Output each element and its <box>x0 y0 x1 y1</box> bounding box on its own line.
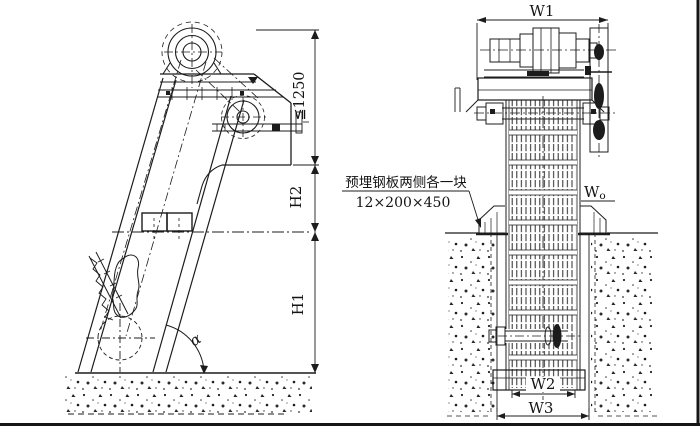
note-line1: 预埋钢板两侧各一块 <box>345 175 467 190</box>
bar-screen-drawing: ≦1250 H2 H1 α W1 Wo W2 W3 预埋钢板两侧各一块 12×2… <box>0 0 700 426</box>
dim-label-w2: W2 <box>531 375 556 393</box>
deck-anchor-boxes <box>142 213 192 242</box>
dim-label-h1: H1 <box>289 293 307 316</box>
side-view <box>64 22 319 414</box>
head-drive-assembly <box>158 24 309 204</box>
bar-grille <box>506 96 580 400</box>
w0-main: W <box>584 183 600 201</box>
chain-paths <box>100 22 258 336</box>
lower-sprocket <box>86 303 155 372</box>
dim-label-w3: W3 <box>529 399 554 417</box>
screen-frame-side <box>78 78 244 372</box>
note-line2: 12×200×450 <box>356 195 451 211</box>
dim-label-w1: W1 <box>530 2 555 20</box>
dim-label-discharge-max: ≦1250 <box>292 71 308 120</box>
side-ground <box>64 373 316 414</box>
dim-label-w0: Wo <box>584 183 606 202</box>
front-view <box>342 17 658 420</box>
angle-alpha-label: α <box>186 329 204 350</box>
technical-drawing-canvas: ≦1250 H2 H1 α W1 Wo W2 W3 预埋钢板两侧各一块 12×2… <box>0 0 700 426</box>
w0-subscript: o <box>599 190 605 202</box>
dim-label-h2: H2 <box>287 186 305 209</box>
